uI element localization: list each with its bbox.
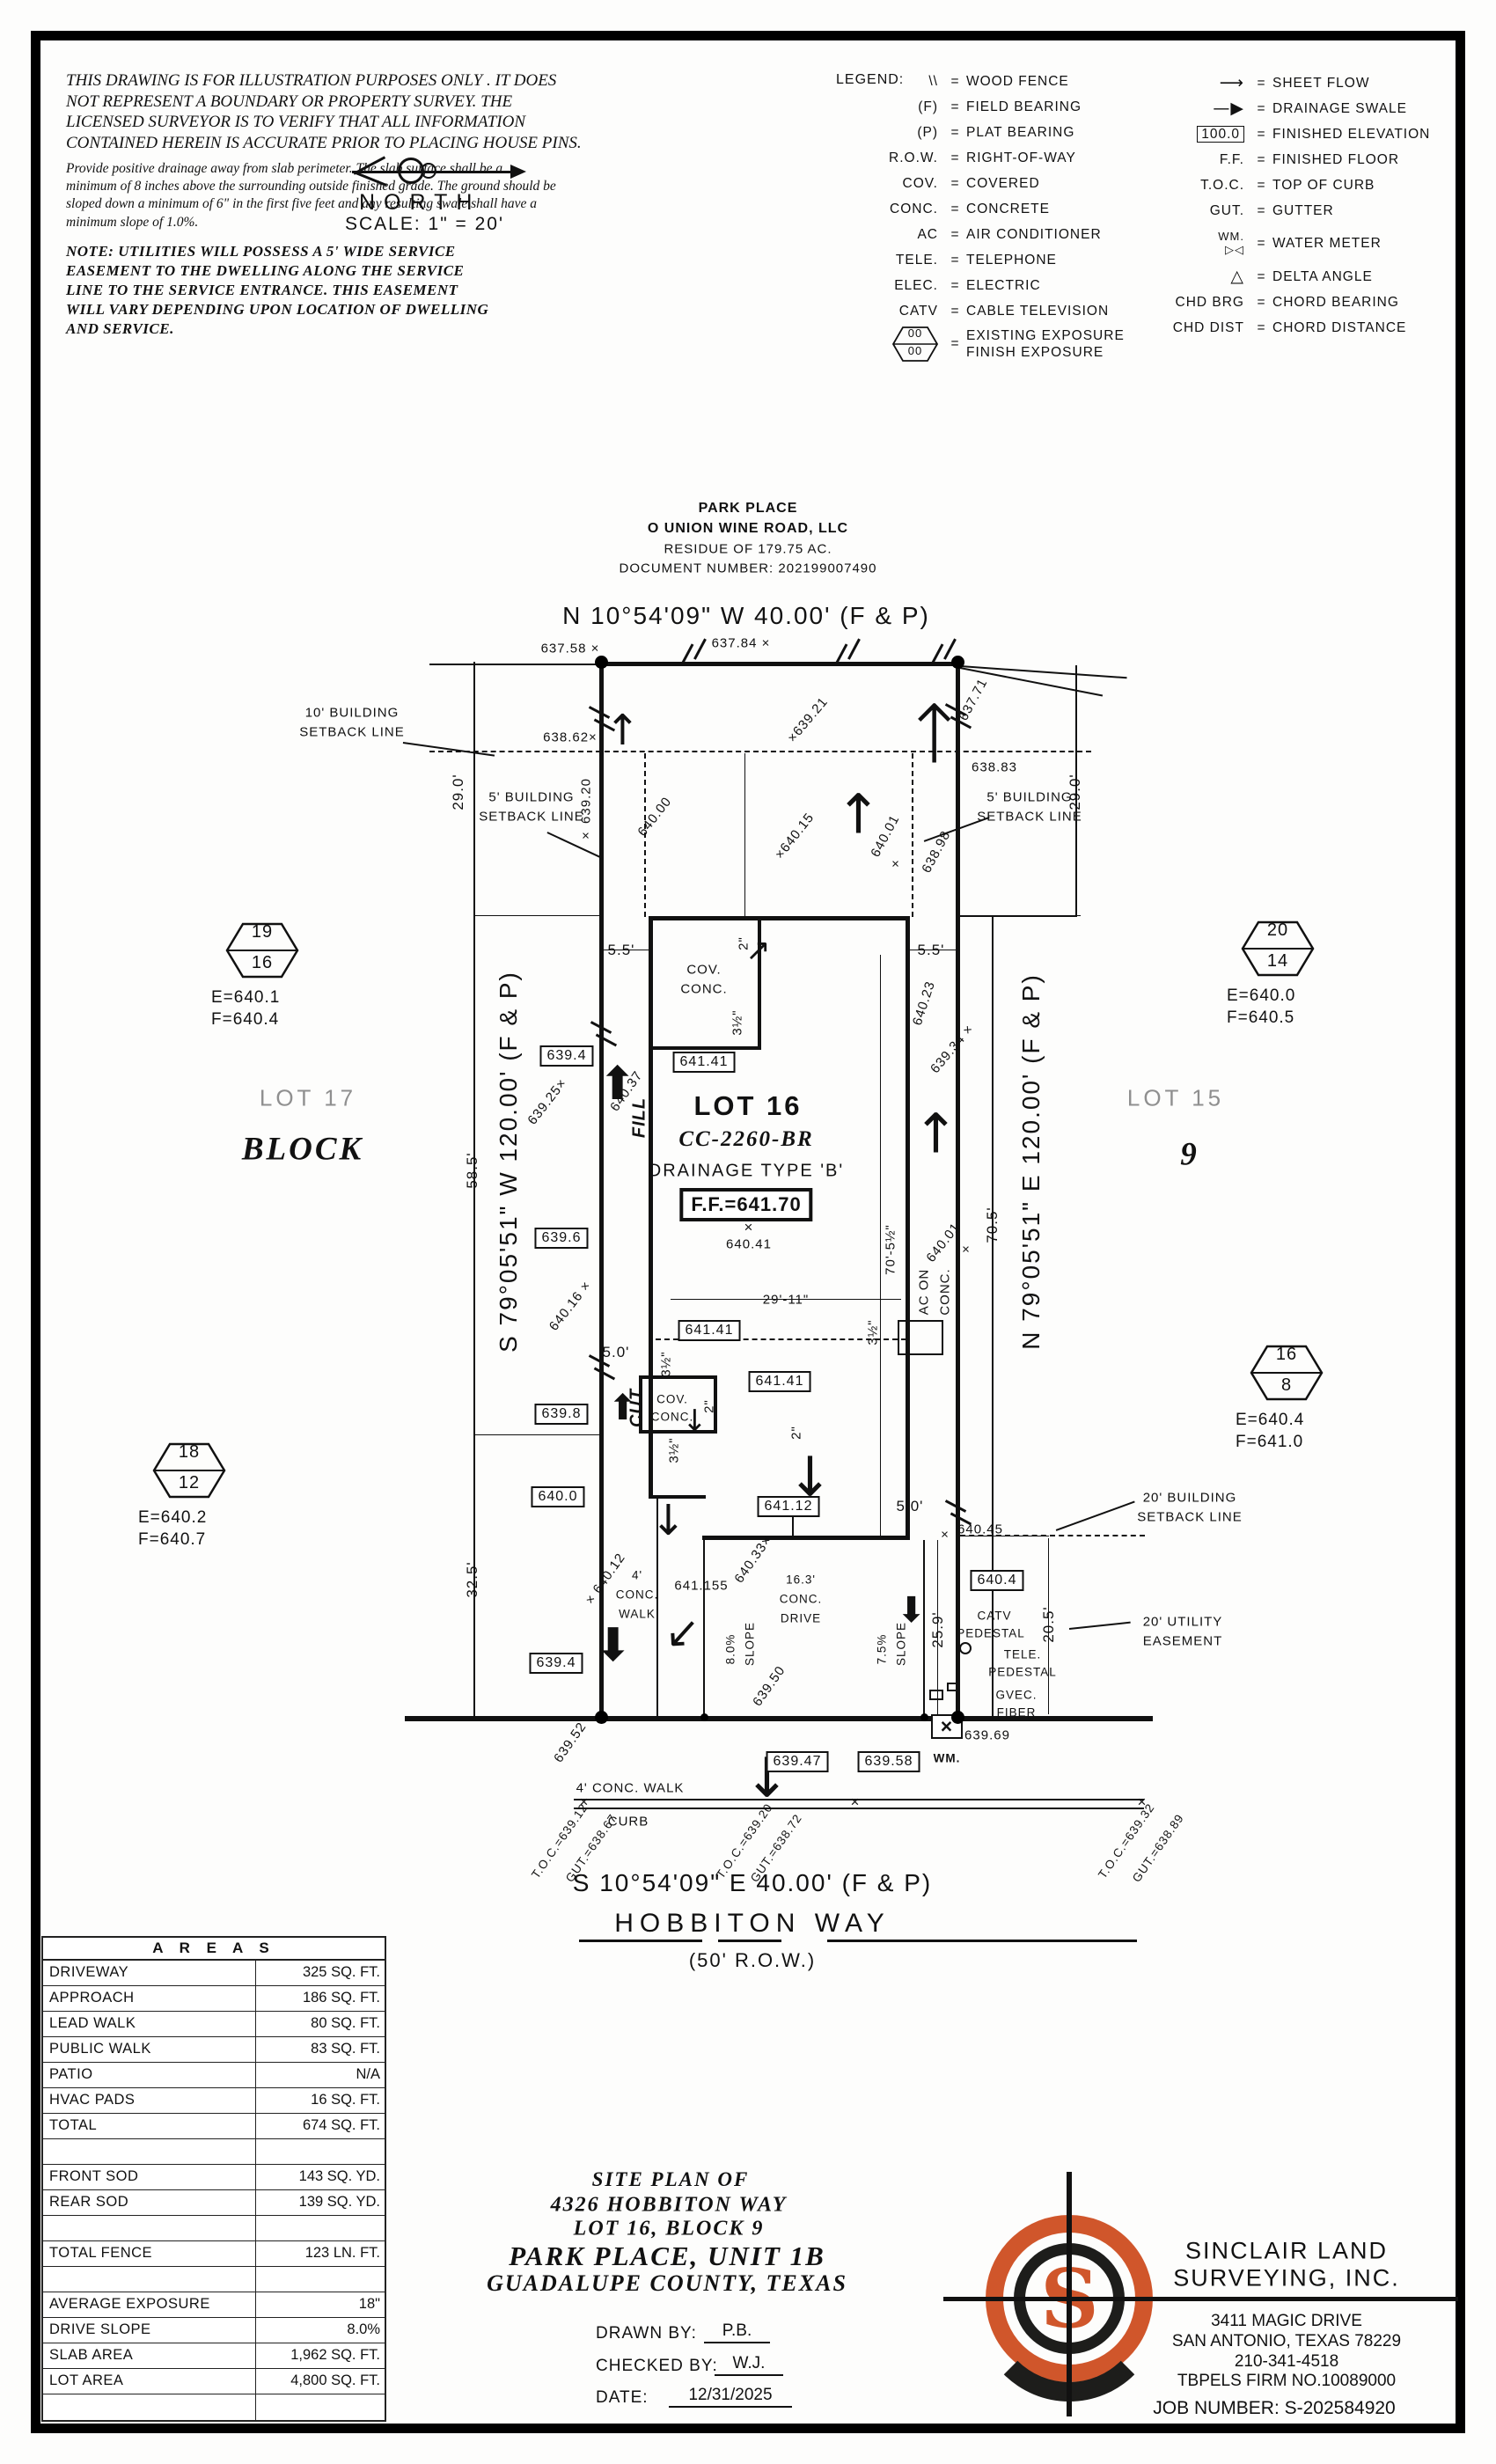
legend-symbol: COV. xyxy=(834,176,943,192)
exposure-hex-marker: 168E=640.4F=641.0 xyxy=(1250,1341,1324,1404)
plan-annotation: PEDESTAL xyxy=(957,1627,1025,1640)
areas-value xyxy=(255,2394,385,2420)
areas-value: 325 SQ. FT. xyxy=(255,1961,385,1985)
areas-table-row: AVERAGE EXPOSURE18" xyxy=(43,2292,385,2318)
areas-label xyxy=(43,2267,255,2292)
areas-label: REAR SOD xyxy=(43,2190,255,2215)
plan-annotation: × xyxy=(962,1243,971,1258)
plan-annotation: CONC. xyxy=(680,982,727,997)
legend-description: WOOD FENCE xyxy=(966,73,1069,90)
legend-symbol: 0000 xyxy=(834,325,943,363)
legend-symbol: —▶ xyxy=(1169,99,1250,119)
plan-annotation: × xyxy=(891,857,900,872)
plan-annotation: 641.41 xyxy=(673,1052,736,1073)
gvec-box-icon xyxy=(929,1690,943,1700)
legend-symbol: \\ xyxy=(834,74,943,90)
areas-table-row: LEAD WALK80 SQ. FT. xyxy=(43,2012,385,2037)
drainage-type: DRAINAGE TYPE 'B' xyxy=(649,1162,844,1182)
areas-label xyxy=(43,2394,255,2420)
plan-annotation: 639.4 xyxy=(529,1653,583,1674)
legend-row: GUT.=GUTTER xyxy=(1169,198,1430,224)
date-label: DATE: xyxy=(596,2388,649,2408)
plan-annotation: 5.5' xyxy=(918,942,945,959)
areas-table-row: HVAC PADS16 SQ. FT. xyxy=(43,2088,385,2114)
legend-description: CABLE TELEVISION xyxy=(966,303,1109,319)
legend-description: GUTTER xyxy=(1272,202,1334,219)
plan-annotation: 637.84 × xyxy=(712,636,771,651)
plan-annotation: 639.47 xyxy=(766,1751,829,1772)
areas-label: APPROACH xyxy=(43,1986,255,2011)
dim-tick-1630-left xyxy=(473,1434,601,1435)
title-line1: SITE PLAN OF xyxy=(592,2168,750,2191)
plan-annotation: ⬇ xyxy=(594,1619,634,1672)
areas-table-row: FRONT SOD143 SQ. YD. xyxy=(43,2165,385,2190)
boundary-ext-left xyxy=(429,664,601,665)
plan-annotation: 639.8 xyxy=(534,1404,588,1425)
plan-annotation: 638.83 xyxy=(972,760,1017,775)
garage-front-wall xyxy=(702,1536,910,1540)
areas-table-row: PATION/A xyxy=(43,2063,385,2088)
plan-annotation: 29.0' xyxy=(450,774,467,810)
bearing-east: N 79°05'51" E 120.00' (F & P) xyxy=(1017,973,1045,1350)
gvec-fiber-label: GVEC. xyxy=(995,1689,1037,1702)
plan-annotation: SLOPE xyxy=(895,1622,908,1666)
areas-value xyxy=(255,2139,385,2164)
plan-annotation: CONC. xyxy=(616,1588,659,1602)
plan-annotation: 5.0' xyxy=(603,1344,630,1361)
legend-symbol: CONC. xyxy=(834,202,943,217)
north-label: NORTH xyxy=(359,190,480,216)
surveyor-firm: TBPELS FIRM NO.10089000 xyxy=(1177,2372,1396,2391)
legend-column-1: \\=WOOD FENCE(F)=FIELD BEARING(P)=PLAT B… xyxy=(834,69,1125,364)
plan-annotation: 58.5' xyxy=(464,1152,481,1188)
plan-annotation: SETBACK LINE xyxy=(977,810,1082,825)
legend-row: △=DELTA ANGLE xyxy=(1169,264,1430,290)
areas-table-row: TOTAL FENCE123 LN. FT. xyxy=(43,2241,385,2267)
drive-pin-left xyxy=(700,1713,708,1721)
cut-label: CUT xyxy=(627,1389,648,1427)
legend-description: DRAINAGE SWALE xyxy=(1272,100,1407,117)
areas-table: A R E A S DRIVEWAY325 SQ. FT.APPROACH186… xyxy=(41,1936,386,2422)
plan-annotation: SLOPE xyxy=(744,1622,757,1666)
legend-column-2: ⟶=SHEET FLOW—▶=DRAINAGE SWALE100.0=FINIS… xyxy=(1169,70,1430,341)
hex-top-value: 18 xyxy=(152,1442,226,1463)
legend-description: EXISTING EXPOSURE FINISH EXPOSURE xyxy=(966,327,1125,362)
plan-annotation: ↓ xyxy=(650,1496,686,1545)
areas-label: FRONT SOD xyxy=(43,2165,255,2189)
title-line3: LOT 16, BLOCK 9 xyxy=(574,2218,765,2241)
disclaimer-text: THIS DRAWING IS FOR ILLUSTRATION PURPOSE… xyxy=(66,70,840,153)
legend-description: CHORD DISTANCE xyxy=(1272,319,1406,336)
setback-10ft-label: 10' BUILDING xyxy=(305,706,400,721)
corner-pin-sw xyxy=(595,1711,608,1724)
plan-annotation: × xyxy=(941,1528,950,1543)
legend-symbol: CHD BRG xyxy=(1169,295,1250,311)
plan-annotation: 2" xyxy=(789,1426,804,1440)
hex-bottom-value: 16 xyxy=(225,953,299,973)
legend-symbol: ⟶ xyxy=(1169,74,1250,93)
plan-annotation: ↑ xyxy=(900,688,969,782)
street-underline-2 xyxy=(718,1940,781,1942)
hex-top-value: 16 xyxy=(1250,1345,1324,1365)
legend-row: R.O.W.=RIGHT-OF-WAY xyxy=(834,145,1125,171)
plan-annotation: 2" xyxy=(702,1399,717,1413)
lot-boundary-left xyxy=(599,662,604,1721)
lot17-label: LOT 17 xyxy=(260,1085,356,1112)
areas-value xyxy=(255,2216,385,2240)
house-wall-right xyxy=(906,916,910,1540)
hex-bottom-value: 12 xyxy=(152,1473,226,1493)
areas-value: 80 SQ. FT. xyxy=(255,2012,385,2036)
areas-value: 83 SQ. FT. xyxy=(255,2037,385,2062)
areas-table-title: A R E A S xyxy=(43,1938,385,1961)
legend-description: WATER METER xyxy=(1272,235,1382,252)
areas-label xyxy=(43,2139,255,2164)
exposure-hex-marker: 1916E=640.1F=640.4 xyxy=(225,919,299,982)
scale-label: SCALE: 1" = 20' xyxy=(345,214,504,235)
hex-top-value: 20 xyxy=(1241,920,1315,941)
plan-annotation: DRIVE xyxy=(781,1612,821,1625)
setback-5ft-right-label: 5' BUILDING xyxy=(986,790,1072,805)
drawn-by-label: DRAWN BY: xyxy=(596,2324,697,2343)
legend-row: ELEC.=ELECTRIC xyxy=(834,273,1125,298)
areas-label xyxy=(43,2216,255,2240)
plan-annotation: × xyxy=(580,1793,590,1811)
bearing-north: N 10°54'09" W 40.00' (F & P) xyxy=(562,602,930,630)
legend-row: (F)=FIELD BEARING xyxy=(834,94,1125,120)
plan-code: CC-2260-BR xyxy=(678,1127,813,1152)
legend-row: —▶=DRAINAGE SWALE xyxy=(1169,96,1430,121)
plan-annotation: WALK xyxy=(619,1608,656,1621)
water-meter-label: WM. xyxy=(934,1752,961,1765)
areas-value: 123 LN. FT. xyxy=(255,2241,385,2266)
legend-row: F.F.=FINISHED FLOOR xyxy=(1169,147,1430,172)
plan-annotation: 639.6 xyxy=(534,1228,588,1249)
title-line4: PARK PLACE, UNIT 1B xyxy=(509,2240,825,2272)
cov-conc-front: COV. xyxy=(656,1393,688,1406)
owner-name: O UNION WINE ROAD, LLC xyxy=(648,521,848,537)
areas-table-row: DRIVEWAY325 SQ. FT. xyxy=(43,1961,385,1986)
legend-description: CONCRETE xyxy=(966,201,1050,217)
areas-table-row: DRIVE SLOPE8.0% xyxy=(43,2318,385,2343)
legend-symbol: GUT. xyxy=(1169,203,1250,219)
block-label: BLOCK xyxy=(242,1131,363,1169)
legend-description: DELTA ANGLE xyxy=(1272,268,1373,285)
drive-pin-right xyxy=(920,1713,928,1721)
hex-bottom-value: 14 xyxy=(1241,951,1315,972)
plan-annotation: SETBACK LINE xyxy=(299,725,405,740)
plan-annotation: 640.45 xyxy=(957,1522,1003,1537)
areas-label: PUBLIC WALK xyxy=(43,2037,255,2062)
plan-annotation: CONC. xyxy=(938,1268,953,1315)
areas-table-row xyxy=(43,2267,385,2292)
areas-table-row: SLAB AREA1,962 SQ. FT. xyxy=(43,2343,385,2369)
plan-annotation: ↑ xyxy=(836,782,883,847)
areas-table-row xyxy=(43,2216,385,2241)
legend-row: T.O.C.=TOP OF CURB xyxy=(1169,172,1430,198)
legend-description: TELEPHONE xyxy=(966,252,1057,268)
legend-symbol: (P) xyxy=(834,125,943,141)
checked-by-label: CHECKED BY: xyxy=(596,2357,718,2376)
plan-annotation: × xyxy=(744,1219,754,1236)
exposure-values: E=640.2F=640.7 xyxy=(138,1507,261,1551)
cov-conc-rear: COV. xyxy=(686,963,721,978)
fill-label: FILL xyxy=(630,1097,650,1138)
legend-row: 100.0=FINISHED ELEVATION xyxy=(1169,121,1430,147)
plan-annotation: SETBACK LINE xyxy=(1137,1510,1243,1525)
surveyor-name1: SINCLAIR LAND xyxy=(1185,2238,1388,2265)
areas-table-row: LOT AREA4,800 SQ. FT. xyxy=(43,2369,385,2394)
finished-floor: F.F.=641.70 xyxy=(679,1188,812,1221)
areas-table-row: TOTAL674 SQ. FT. xyxy=(43,2114,385,2139)
legend-description: AIR CONDITIONER xyxy=(966,226,1102,243)
plan-annotation: 639.20 xyxy=(579,778,594,824)
setback-10ft-line xyxy=(429,751,1091,752)
plan-annotation: 5.0' xyxy=(897,1498,924,1515)
legend-symbol: 100.0 xyxy=(1169,126,1250,143)
title-line5: GUADALUPE COUNTY, TEXAS xyxy=(487,2270,847,2297)
checked-by-value: W.J. xyxy=(715,2354,783,2376)
surveyor-name2: SURVEYING, INC. xyxy=(1173,2265,1400,2292)
plan-annotation: 638.62× xyxy=(543,730,598,745)
dim-ext-846 xyxy=(744,753,745,916)
plan-annotation: FIBER xyxy=(997,1706,1037,1720)
plan-annotation: 639.58 xyxy=(858,1751,920,1772)
areas-label: SLAB AREA xyxy=(43,2343,255,2368)
legend-row: CATV=CABLE TELEVISION xyxy=(834,298,1125,324)
dim-line-right-a xyxy=(992,915,994,1719)
plan-annotation: 29'-11" xyxy=(763,1293,809,1308)
legend-row: AC=AIR CONDITIONER xyxy=(834,222,1125,247)
plan-annotation: 641.41 xyxy=(678,1320,741,1341)
areas-table-row: REAR SOD139 SQ. YD. xyxy=(43,2190,385,2216)
plan-annotation: 70'-5½" xyxy=(884,1224,898,1275)
legend-symbol: (F) xyxy=(834,99,943,115)
legend-row: WM. ▷◁=WATER METER xyxy=(1169,224,1430,264)
subdivision-name: PARK PLACE xyxy=(699,501,798,517)
plan-annotation: 640.4 xyxy=(970,1570,1023,1591)
plan-annotation: 637.58 × xyxy=(541,642,600,656)
legend-description: PLAT BEARING xyxy=(966,124,1074,141)
plan-annotation: CONC. xyxy=(651,1411,694,1424)
hex-top-value: 19 xyxy=(225,922,299,942)
legend-symbol: R.O.W. xyxy=(834,150,943,166)
plan-annotation: × xyxy=(851,1793,861,1811)
legend-symbol: CHD DIST xyxy=(1169,320,1250,336)
plan-annotation: 3½" xyxy=(730,1009,745,1035)
plan-annotation: SETBACK LINE xyxy=(479,810,584,825)
surveyor-job-number: JOB NUMBER: S-202584920 xyxy=(1153,2398,1395,2419)
legend-row: TELE.=TELEPHONE xyxy=(834,247,1125,273)
areas-value: 674 SQ. FT. xyxy=(255,2114,385,2138)
legend-symbol: △ xyxy=(1169,268,1250,287)
legend-description: FINISHED ELEVATION xyxy=(1272,126,1430,143)
ac-pad-outline xyxy=(898,1320,943,1355)
lead-walk-label: 4' xyxy=(632,1569,642,1582)
surveyor-phone: 210-341-4518 xyxy=(1235,2352,1338,2372)
legend-description: ELECTRIC xyxy=(966,277,1041,294)
public-walk-label: 4' CONC. WALK xyxy=(576,1781,685,1796)
logo-crosshair-horizontal xyxy=(943,2297,1458,2301)
areas-table-row xyxy=(43,2394,385,2420)
areas-table-row: APPROACH186 SQ. FT. xyxy=(43,1986,385,2012)
plan-annotation: 3½" xyxy=(667,1437,682,1463)
plan-annotation: 5.5' xyxy=(608,942,635,959)
corner-pin-se xyxy=(951,1711,964,1724)
areas-value: 186 SQ. FT. xyxy=(255,1986,385,2011)
plan-annotation: 3½" xyxy=(866,1319,881,1345)
legend-description: COVERED xyxy=(966,175,1040,192)
dim-tick-1042-right xyxy=(957,916,1076,917)
areas-value: 139 SQ. YD. xyxy=(255,2190,385,2215)
surveyor-addr1: 3411 MAGIC DRIVE xyxy=(1211,2312,1362,2331)
areas-label: DRIVE SLOPE xyxy=(43,2318,255,2343)
areas-label: TOTAL xyxy=(43,2114,255,2138)
legend-symbol: ELEC. xyxy=(834,278,943,294)
plan-annotation: 639.4 xyxy=(539,1045,593,1067)
areas-value: 16 SQ. FT. xyxy=(255,2088,385,2113)
plan-annotation: 25.9' xyxy=(929,1611,947,1647)
legend-description: CHORD BEARING xyxy=(1272,294,1399,311)
areas-label: LOT AREA xyxy=(43,2369,255,2394)
plan-annotation: 70.5' xyxy=(984,1206,1001,1243)
plan-annotation: 639.69 xyxy=(964,1728,1010,1743)
plan-annotation: 7.5% xyxy=(876,1634,889,1665)
plan-annotation: × xyxy=(941,1715,953,1739)
legend-symbol: T.O.C. xyxy=(1169,178,1250,194)
dim-70-5 xyxy=(880,955,881,1536)
plan-annotation: 3½" xyxy=(659,1351,674,1376)
areas-table-row xyxy=(43,2139,385,2165)
areas-value: 1,962 SQ. FT. xyxy=(255,2343,385,2368)
north-arrow-head xyxy=(510,165,526,179)
areas-label: TOTAL FENCE xyxy=(43,2241,255,2266)
plan-annotation: 641.155 xyxy=(674,1579,728,1594)
areas-label: LEAD WALK xyxy=(43,2012,255,2036)
corner-pin-nw xyxy=(595,656,608,669)
hex-bottom-value: 8 xyxy=(1250,1375,1324,1396)
plan-annotation: ↑ xyxy=(913,1102,960,1166)
legend-symbol: CATV xyxy=(834,304,943,319)
legend-symbol: AC xyxy=(834,227,943,243)
exposure-hex-marker: 2014E=640.0F=640.5 xyxy=(1241,917,1315,980)
legend-symbol: WM. ▷◁ xyxy=(1169,231,1250,257)
drive-label: 16.3' xyxy=(786,1573,816,1587)
exposure-hex-marker: 1812E=640.2F=640.7 xyxy=(152,1439,226,1502)
areas-value: 8.0% xyxy=(255,2318,385,2343)
street-underline-1 xyxy=(579,1940,702,1942)
leader-641-12 xyxy=(792,1515,794,1536)
areas-value xyxy=(255,2267,385,2292)
plan-annotation: PEDESTAL xyxy=(988,1666,1057,1679)
dim-tick-1040-left xyxy=(473,915,601,916)
legend-row: COV.=COVERED xyxy=(834,171,1125,196)
plan-annotation: × xyxy=(1138,1793,1148,1811)
street-curb-line xyxy=(405,1716,1153,1721)
areas-value: N/A xyxy=(255,2063,385,2087)
plan-annotation: 8.0% xyxy=(724,1634,737,1665)
lot-boundary-top xyxy=(601,662,957,666)
bearing-west: S 79°05'51" W 120.00' (F & P) xyxy=(495,971,523,1353)
corner-pin-ne xyxy=(951,656,964,669)
plan-annotation: 640.41 xyxy=(726,1237,772,1252)
legend-row: \\=WOOD FENCE xyxy=(834,69,1125,94)
date-value: 12/31/2025 xyxy=(669,2386,792,2408)
tele-pedestal-label: TELE. xyxy=(1004,1648,1042,1661)
legend-row: ⟶=SHEET FLOW xyxy=(1169,70,1430,96)
setback-20ft-label: 20' BUILDING xyxy=(1143,1491,1237,1506)
plan-annotation: 2" xyxy=(737,936,752,950)
gvec-box2-icon xyxy=(947,1683,957,1691)
plan-annotation: 641.41 xyxy=(749,1371,811,1392)
setback-5ft-left-label: 5' BUILDING xyxy=(488,790,574,805)
exposure-values: E=640.1F=640.4 xyxy=(211,987,334,1030)
legend-description: RIGHT-OF-WAY xyxy=(966,150,1076,166)
utilities-note: NOTE: UTILITIES WILL POSSESS A 5' WIDE S… xyxy=(66,242,506,339)
legend-description: TOP OF CURB xyxy=(1272,177,1375,194)
plan-annotation: ↑ xyxy=(605,706,641,755)
legend-row: CONC.=CONCRETE xyxy=(834,196,1125,222)
plan-annotation: 32.5' xyxy=(464,1561,481,1597)
areas-value: 4,800 SQ. FT. xyxy=(255,2369,385,2394)
areas-label: DRIVEWAY xyxy=(43,1961,255,1985)
street-underline-3 xyxy=(827,1940,1137,1942)
block-number: 9 xyxy=(1180,1136,1199,1174)
document-number: DOCUMENT NUMBER: 202199007490 xyxy=(619,561,876,576)
areas-value: 18" xyxy=(255,2292,385,2317)
ac-label: AC ON xyxy=(917,1269,932,1316)
legend-row: CHD DIST=CHORD DISTANCE xyxy=(1169,315,1430,341)
legend-row: (P)=PLAT BEARING xyxy=(834,120,1125,145)
utility-easement-label: 20' UTILITY xyxy=(1143,1615,1223,1630)
catv-pedestal-label: CATV xyxy=(977,1610,1011,1623)
areas-table-row: PUBLIC WALK83 SQ. FT. xyxy=(43,2037,385,2063)
plan-annotation: CONC. xyxy=(780,1593,823,1606)
legend-symbol: F.F. xyxy=(1169,152,1250,168)
areas-value: 143 SQ. YD. xyxy=(255,2165,385,2189)
plan-annotation: EASEMENT xyxy=(1143,1634,1223,1649)
site-plan-page: THIS DRAWING IS FOR ILLUSTRATION PURPOSE… xyxy=(0,0,1496,2464)
legend-symbol: TELE. xyxy=(834,253,943,268)
title-line2: 4326 HOBBITON WAY xyxy=(551,2194,788,2218)
surveyor-addr2: SAN ANTONIO, TEXAS 78229 xyxy=(1172,2332,1401,2351)
plan-annotation: 20.5' xyxy=(1040,1606,1058,1642)
street-name: HOBBITON WAY xyxy=(614,1909,890,1939)
logo-crosshair-vertical xyxy=(1067,2172,1072,2416)
lot15-label: LOT 15 xyxy=(1127,1085,1224,1112)
catv-pedestal-icon xyxy=(959,1642,972,1654)
areas-label: PATIO xyxy=(43,2063,255,2087)
exposure-values: E=640.0F=640.5 xyxy=(1227,986,1350,1029)
areas-label: AVERAGE EXPOSURE xyxy=(43,2292,255,2317)
residue-note: RESIDUE OF 179.75 AC. xyxy=(664,542,832,557)
legend-description: FIELD BEARING xyxy=(966,99,1082,115)
bearing-south: S 10°54'09" E 40.00' (F & P) xyxy=(573,1869,932,1897)
drawn-by-value: P.B. xyxy=(704,2321,770,2343)
lot-label: LOT 16 xyxy=(693,1090,802,1122)
legend-row: CHD BRG=CHORD BEARING xyxy=(1169,290,1430,315)
lot-boundary-right xyxy=(956,662,960,1721)
plan-annotation: 641.12 xyxy=(758,1496,820,1517)
exposure-values: E=640.4F=641.0 xyxy=(1236,1410,1359,1453)
areas-label: HVAC PADS xyxy=(43,2088,255,2113)
legend-description: FINISHED FLOOR xyxy=(1272,151,1399,168)
street-row: (50' R.O.W.) xyxy=(689,1949,816,1972)
plan-annotation: × xyxy=(582,829,590,844)
plan-annotation: 640.0 xyxy=(531,1486,584,1507)
north-arrow-curl2-icon xyxy=(421,163,436,179)
legend-description: SHEET FLOW xyxy=(1272,75,1369,92)
